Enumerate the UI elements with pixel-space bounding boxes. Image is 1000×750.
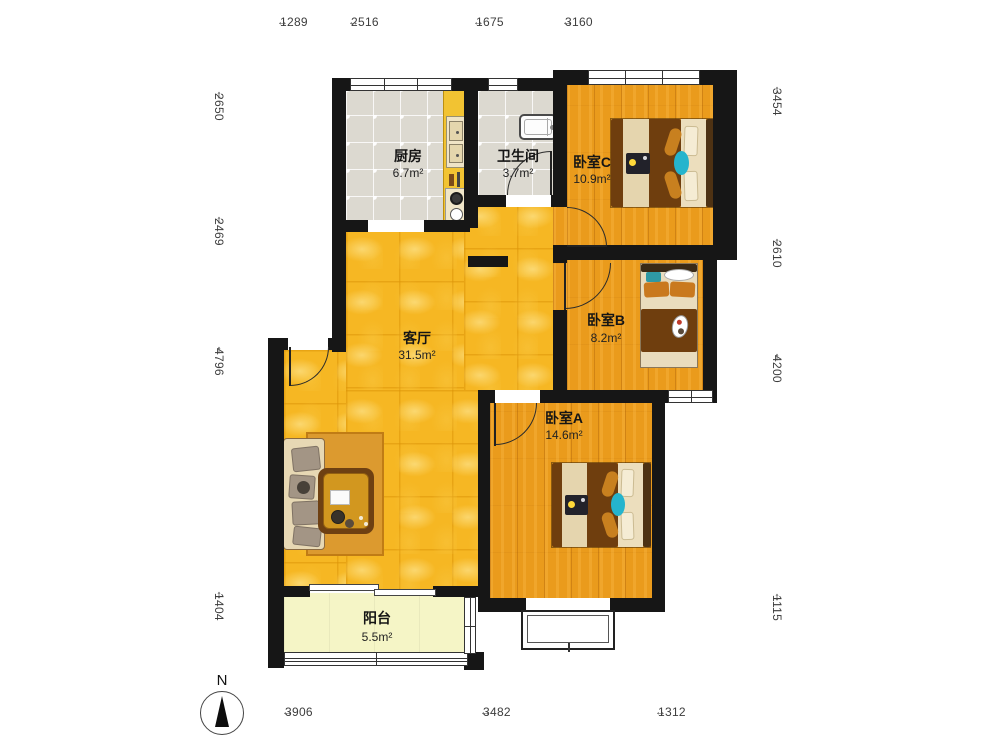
- bed-pillow: [683, 171, 698, 201]
- bed-pillow: [644, 281, 670, 297]
- wall-hall-bedroom-pier: [553, 245, 567, 263]
- window-mullion: [351, 85, 451, 86]
- stove-burner: [450, 192, 463, 205]
- wall-bedroom-c-right: [713, 70, 737, 260]
- entry-door-leaf: [289, 347, 291, 386]
- arrow-down-icon: ↓: [774, 592, 780, 603]
- window-mullion: [376, 653, 377, 665]
- sofa-cushion: [291, 446, 321, 473]
- table-bowl: [331, 510, 345, 524]
- wall-bedroom-a-left: [478, 390, 490, 610]
- sofa-cushion: [291, 500, 320, 525]
- bed-cushion-teal: [646, 272, 661, 282]
- floor-living-upper: [346, 228, 464, 390]
- bed-tray-oval: [664, 269, 694, 281]
- sink-basin: [449, 121, 463, 141]
- bedroom-a-door-leaf: [494, 403, 496, 446]
- arrow-right-icon: →: [480, 707, 491, 718]
- dimension-right-3: ↑4200↓: [768, 352, 786, 587]
- wall-bedroom-b-right: [703, 245, 717, 403]
- bay-window-inner: [527, 615, 609, 643]
- arrow-down-icon: ↓: [216, 345, 222, 356]
- bed-pillow: [670, 281, 696, 297]
- wall-balcony-top-right: [433, 586, 478, 597]
- bed-bedroom-a: [551, 462, 651, 548]
- arrow-right-icon: →: [277, 17, 288, 28]
- floor-plan: 厨房 6.7m² 卫生间 3.7m² 卧室C 10.9m² 卧室B 8.2m² …: [0, 0, 1000, 750]
- window-balcony-front: [284, 652, 468, 666]
- bed-pillow: [621, 469, 635, 497]
- table-dot: [359, 516, 363, 520]
- wall-hall-stub: [468, 256, 508, 267]
- wall-left-lower: [268, 338, 284, 668]
- dimension-left-1: ↑2650↓: [210, 90, 228, 215]
- bedroom-b-door-leaf: [564, 263, 566, 310]
- window-mullion: [589, 78, 699, 79]
- bed-bedroom-c: [610, 118, 713, 208]
- dish-dot: [676, 319, 682, 325]
- bay-window-tick: [568, 643, 570, 652]
- label-balcony-area: 5.5m²: [362, 630, 393, 644]
- label-bathroom-area: 3.7m²: [503, 166, 534, 180]
- dimension-right-4: ↑1115↓: [768, 592, 786, 665]
- window-mullion: [662, 71, 663, 84]
- arrow-right-icon: →: [282, 707, 293, 718]
- utensil: [449, 174, 454, 186]
- window-mullion: [489, 85, 517, 86]
- kitchen-sink: [446, 116, 466, 168]
- bed-bedroom-b: [640, 263, 698, 368]
- utensil: [457, 172, 460, 187]
- bathtub-divider: [547, 118, 548, 136]
- window-balcony-side: [464, 597, 476, 654]
- sliding-door-panel: [309, 584, 379, 591]
- arrow-right-icon: →: [562, 17, 573, 28]
- bay-window: [521, 610, 615, 650]
- window-bathroom: [488, 78, 518, 91]
- label-kitchen-name: 厨房: [394, 146, 422, 166]
- label-bedroom-a-area: 14.6m²: [545, 428, 582, 442]
- dimension-left-2: ↑2469↓: [210, 215, 228, 345]
- arrow-down-icon: ↓: [216, 590, 222, 601]
- window-mullion: [625, 71, 626, 84]
- dimension-left-4: ↑1404↓: [210, 590, 228, 672]
- wall-bath-bedroom-c-divider: [553, 70, 567, 207]
- wall-entry-step-right: [328, 338, 346, 350]
- table-papers: [330, 490, 350, 505]
- dimension-left-3: ↑4796↓: [210, 345, 228, 590]
- arrow-down-icon: ↓: [216, 90, 222, 101]
- bed-tray: [565, 495, 588, 515]
- bed-cushion-teal: [611, 493, 625, 516]
- sliding-door-panel: [374, 589, 436, 596]
- label-bedroom-a-name: 卧室A: [545, 408, 583, 428]
- arrow-down-icon: ↓: [774, 85, 780, 96]
- bed-pillow: [683, 126, 698, 156]
- bathroom-door-leaf: [550, 151, 552, 195]
- wall-hall-bedroom-b: [553, 310, 567, 392]
- wall-balcony-top-left: [284, 586, 310, 597]
- table-bowl: [345, 519, 354, 528]
- label-bedroom-c-name: 卧室C: [573, 152, 611, 172]
- label-living-room-area: 31.5m²: [398, 348, 435, 362]
- bed-cushion-teal: [674, 151, 689, 175]
- opening-bathroom: [506, 195, 551, 207]
- label-kitchen-area: 6.7m²: [393, 166, 424, 180]
- label-bedroom-c-area: 10.9m²: [573, 172, 610, 186]
- wall-bedroom-a-right: [652, 390, 665, 610]
- tray-dot: [581, 498, 585, 502]
- label-bedroom-b-name: 卧室B: [587, 310, 625, 330]
- bed-blanket: [641, 309, 697, 352]
- window-mullion: [417, 79, 418, 90]
- window-mullion: [691, 391, 692, 402]
- arrow-down-icon: ↓: [774, 237, 780, 248]
- north-arrow-icon: [215, 696, 229, 727]
- arrow-right-icon: →: [655, 707, 666, 718]
- wall-left-upper: [332, 78, 346, 352]
- coffee-table: [318, 468, 374, 534]
- tray-dot: [568, 501, 575, 508]
- window-mullion: [384, 79, 385, 90]
- doorway-bedroom-c: [553, 207, 567, 246]
- bed-tray: [626, 153, 650, 174]
- window-mullion: [465, 626, 475, 627]
- sink-basin: [449, 144, 463, 163]
- table-dot: [364, 522, 368, 526]
- arrow-down-icon: ↓: [774, 352, 780, 363]
- bathtub: [519, 114, 557, 140]
- label-bedroom-b-area: 8.2m²: [591, 331, 622, 345]
- bed-headboard: [643, 463, 651, 547]
- label-balcony-name: 阳台: [363, 608, 391, 628]
- bed-pillow: [621, 512, 635, 540]
- sofa-cushion: [292, 526, 322, 548]
- bedroom-c-door-leaf: [567, 245, 607, 247]
- arrow-right-icon: →: [473, 17, 484, 28]
- window-bedroom-b: [668, 390, 713, 403]
- arrow-right-icon: →: [348, 17, 359, 28]
- sofa-throw-pillow: [297, 481, 310, 494]
- opening-bedroom-a: [495, 390, 540, 403]
- window-kitchen: [350, 78, 452, 91]
- north-label: N: [217, 672, 228, 689]
- tray-dot: [629, 159, 636, 166]
- label-living-room-name: 客厅: [403, 328, 431, 348]
- opening-kitchen: [368, 220, 424, 232]
- dimension-right-1: ↑3454↓: [768, 85, 786, 232]
- window-bedroom-c: [588, 70, 700, 85]
- label-bathroom-name: 卫生间: [497, 146, 539, 166]
- dimension-right-2: ↑2610↓: [768, 237, 786, 347]
- arrow-down-icon: ↓: [216, 215, 222, 226]
- tray-dot: [643, 156, 647, 160]
- dish-dot: [677, 328, 684, 335]
